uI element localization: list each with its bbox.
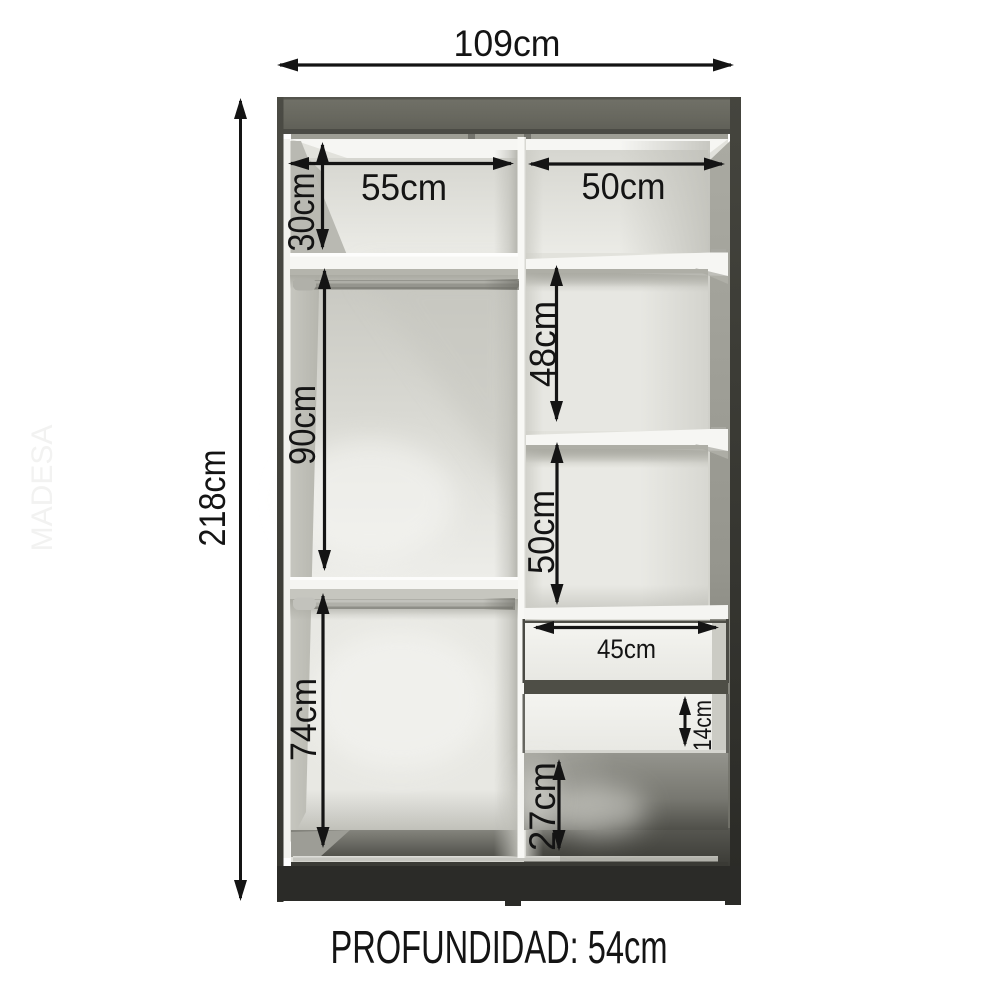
svg-text:50cm: 50cm <box>582 166 666 207</box>
svg-text:109cm: 109cm <box>454 23 561 64</box>
svg-text:55cm: 55cm <box>361 167 447 208</box>
svg-text:45cm: 45cm <box>597 634 656 664</box>
svg-text:218cm: 218cm <box>192 450 233 547</box>
svg-text:PROFUNDIDAD: 54cm: PROFUNDIDAD: 54cm <box>331 921 668 973</box>
svg-text:30cm: 30cm <box>281 173 322 252</box>
svg-text:74cm: 74cm <box>283 678 324 761</box>
svg-text:MADESA: MADESA <box>26 425 59 552</box>
svg-text:50cm: 50cm <box>521 490 562 574</box>
svg-text:90cm: 90cm <box>282 385 323 465</box>
svg-text:27cm: 27cm <box>522 762 563 851</box>
svg-text:48cm: 48cm <box>523 301 564 387</box>
svg-text:14cm: 14cm <box>689 700 717 751</box>
